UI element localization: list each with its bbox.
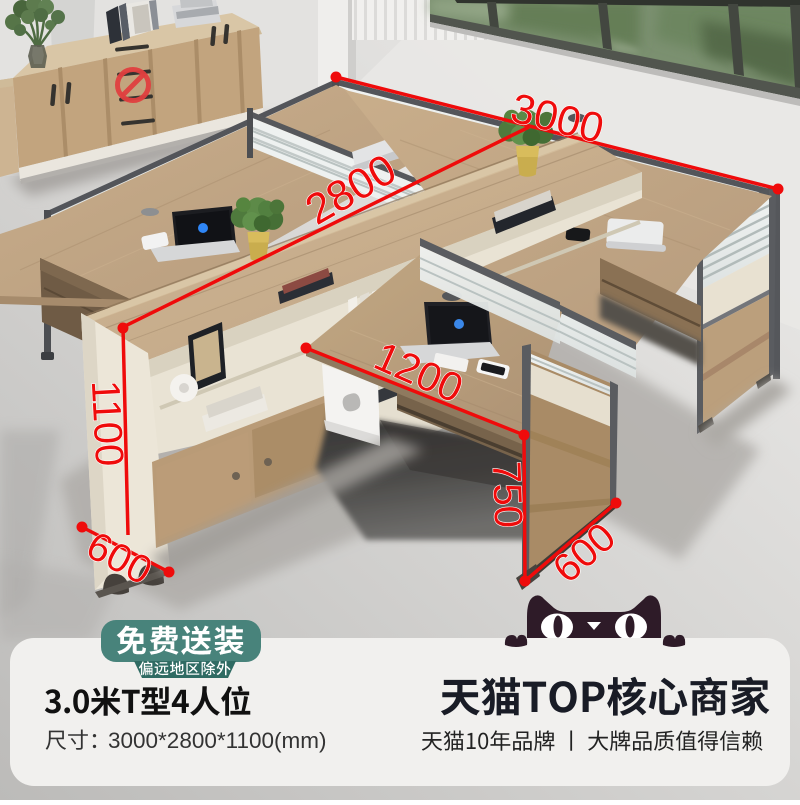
svg-text:1100: 1100 [83, 379, 131, 467]
svg-text:750: 750 [484, 460, 530, 528]
svg-text:3000*2800*1100(mm): 3000*2800*1100(mm) [108, 728, 326, 753]
